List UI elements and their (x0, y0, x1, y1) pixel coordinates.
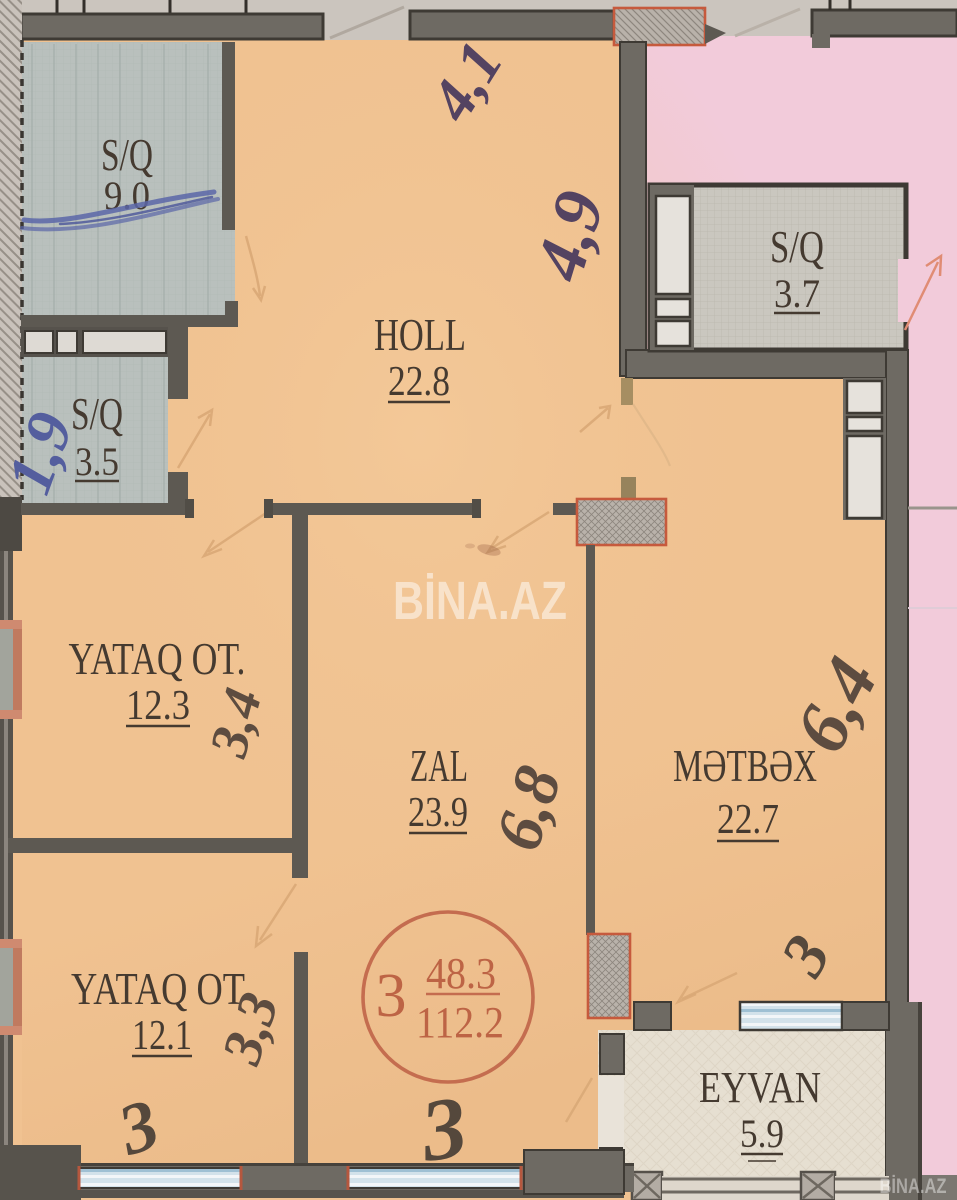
svg-text:ZAL: ZAL (410, 740, 468, 791)
svg-text:S/Q: S/Q (770, 221, 824, 272)
svg-text:3.7: 3.7 (774, 271, 820, 316)
svg-text:BİNA.AZ: BİNA.AZ (393, 571, 567, 631)
svg-text:23.9: 23.9 (408, 790, 468, 836)
svg-text:BİNA.AZ: BİNA.AZ (880, 1175, 947, 1198)
svg-text:HOLL: HOLL (374, 309, 466, 360)
svg-text:YATAQ OT.: YATAQ OT. (69, 633, 246, 684)
svg-text:3: 3 (376, 962, 407, 1030)
svg-text:YATAQ OT: YATAQ OT (71, 963, 245, 1014)
svg-text:5.9: 5.9 (740, 1111, 784, 1156)
svg-text:12.1: 12.1 (132, 1013, 192, 1059)
svg-text:EYVAN: EYVAN (699, 1063, 821, 1112)
svg-text:MƏTBƏX: MƏTBƏX (673, 740, 817, 791)
svg-text:22.8: 22.8 (388, 359, 450, 405)
svg-text:3.5: 3.5 (75, 439, 119, 484)
svg-text:112.2: 112.2 (416, 998, 504, 1047)
svg-text:48.3: 48.3 (426, 949, 496, 998)
svg-text:22.7: 22.7 (717, 797, 779, 843)
svg-text:12.3: 12.3 (126, 683, 190, 729)
